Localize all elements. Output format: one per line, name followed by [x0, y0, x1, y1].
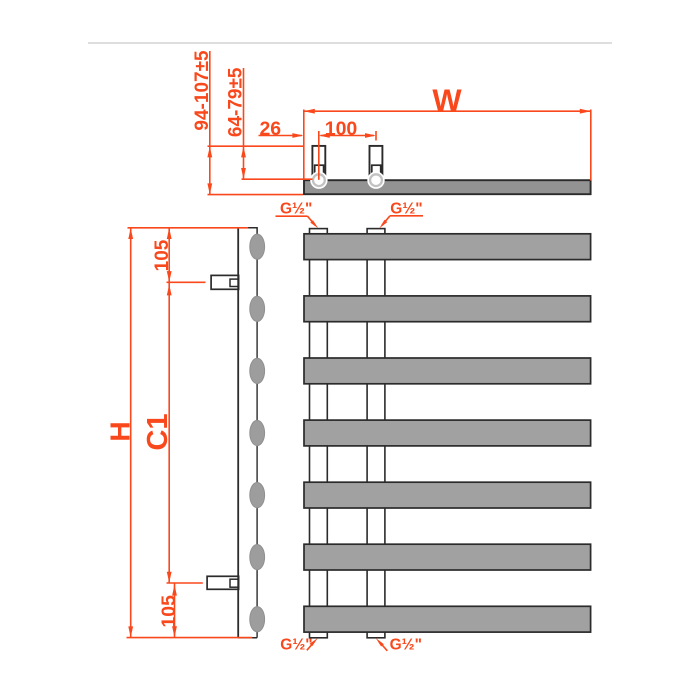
svg-text:G½": G½"	[390, 637, 422, 654]
svg-text:C1: C1	[142, 413, 174, 450]
svg-text:105: 105	[152, 239, 173, 271]
svg-text:100: 100	[325, 118, 358, 140]
svg-text:H: H	[104, 421, 135, 441]
svg-text:105: 105	[158, 595, 180, 628]
svg-text:G½": G½"	[280, 200, 312, 217]
svg-text:W: W	[432, 83, 462, 118]
svg-text:26: 26	[259, 118, 281, 140]
svg-text:G½": G½"	[280, 637, 312, 654]
svg-text:64-79±5: 64-79±5	[226, 67, 247, 137]
svg-text:94-107±5: 94-107±5	[192, 50, 213, 131]
svg-text:G½": G½"	[390, 200, 422, 217]
